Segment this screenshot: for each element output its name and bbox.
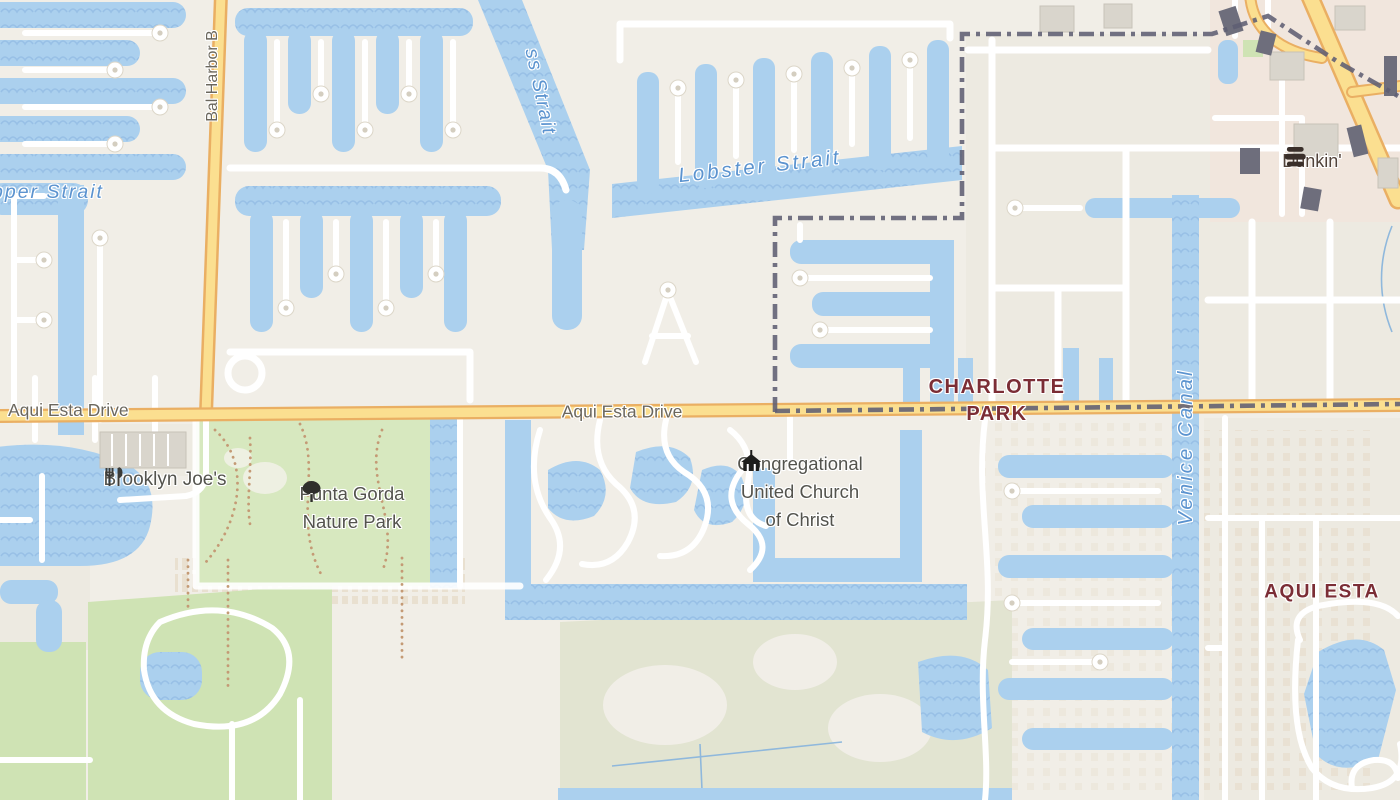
place-label-line2: PARK bbox=[929, 401, 1066, 428]
map-canvas[interactable]: Bal Harbor B pper Strait ss Strait Lobst… bbox=[0, 0, 1400, 800]
poi-church[interactable]: Congregational United Church of Christ bbox=[737, 450, 862, 534]
road-label-bal-harbor: Bal Harbor B bbox=[204, 30, 222, 122]
church-icon bbox=[737, 450, 765, 474]
road-label-aqui-esta-west: Aqui Esta Drive bbox=[8, 400, 129, 421]
water-label-venice-canal: Venice Canal bbox=[1174, 368, 1198, 525]
tree-icon bbox=[300, 480, 324, 504]
place-label-line1: CHARLOTTE bbox=[929, 374, 1066, 401]
road-label-aqui-esta-mid: Aqui Esta Drive bbox=[562, 402, 683, 423]
restaurant-icon bbox=[104, 466, 126, 488]
place-label-charlotte-park: CHARLOTTE PARK bbox=[929, 374, 1066, 428]
water-label-upper-strait: pper Strait bbox=[0, 181, 104, 204]
poi-church-line3: of Christ bbox=[766, 506, 835, 534]
poi-dunkin[interactable]: Dunkin' bbox=[1282, 147, 1341, 175]
poi-brooklyn-joes[interactable]: Brooklyn Joe's bbox=[104, 466, 227, 494]
poi-nature-park-line2: Nature Park bbox=[303, 508, 402, 536]
donut-stack-icon bbox=[1282, 147, 1308, 169]
poi-nature-park[interactable]: Punta Gorda Nature Park bbox=[300, 480, 405, 536]
place-label-aqui-esta: AQUI ESTA bbox=[1264, 579, 1380, 606]
poi-church-line2: United Church bbox=[741, 478, 859, 506]
